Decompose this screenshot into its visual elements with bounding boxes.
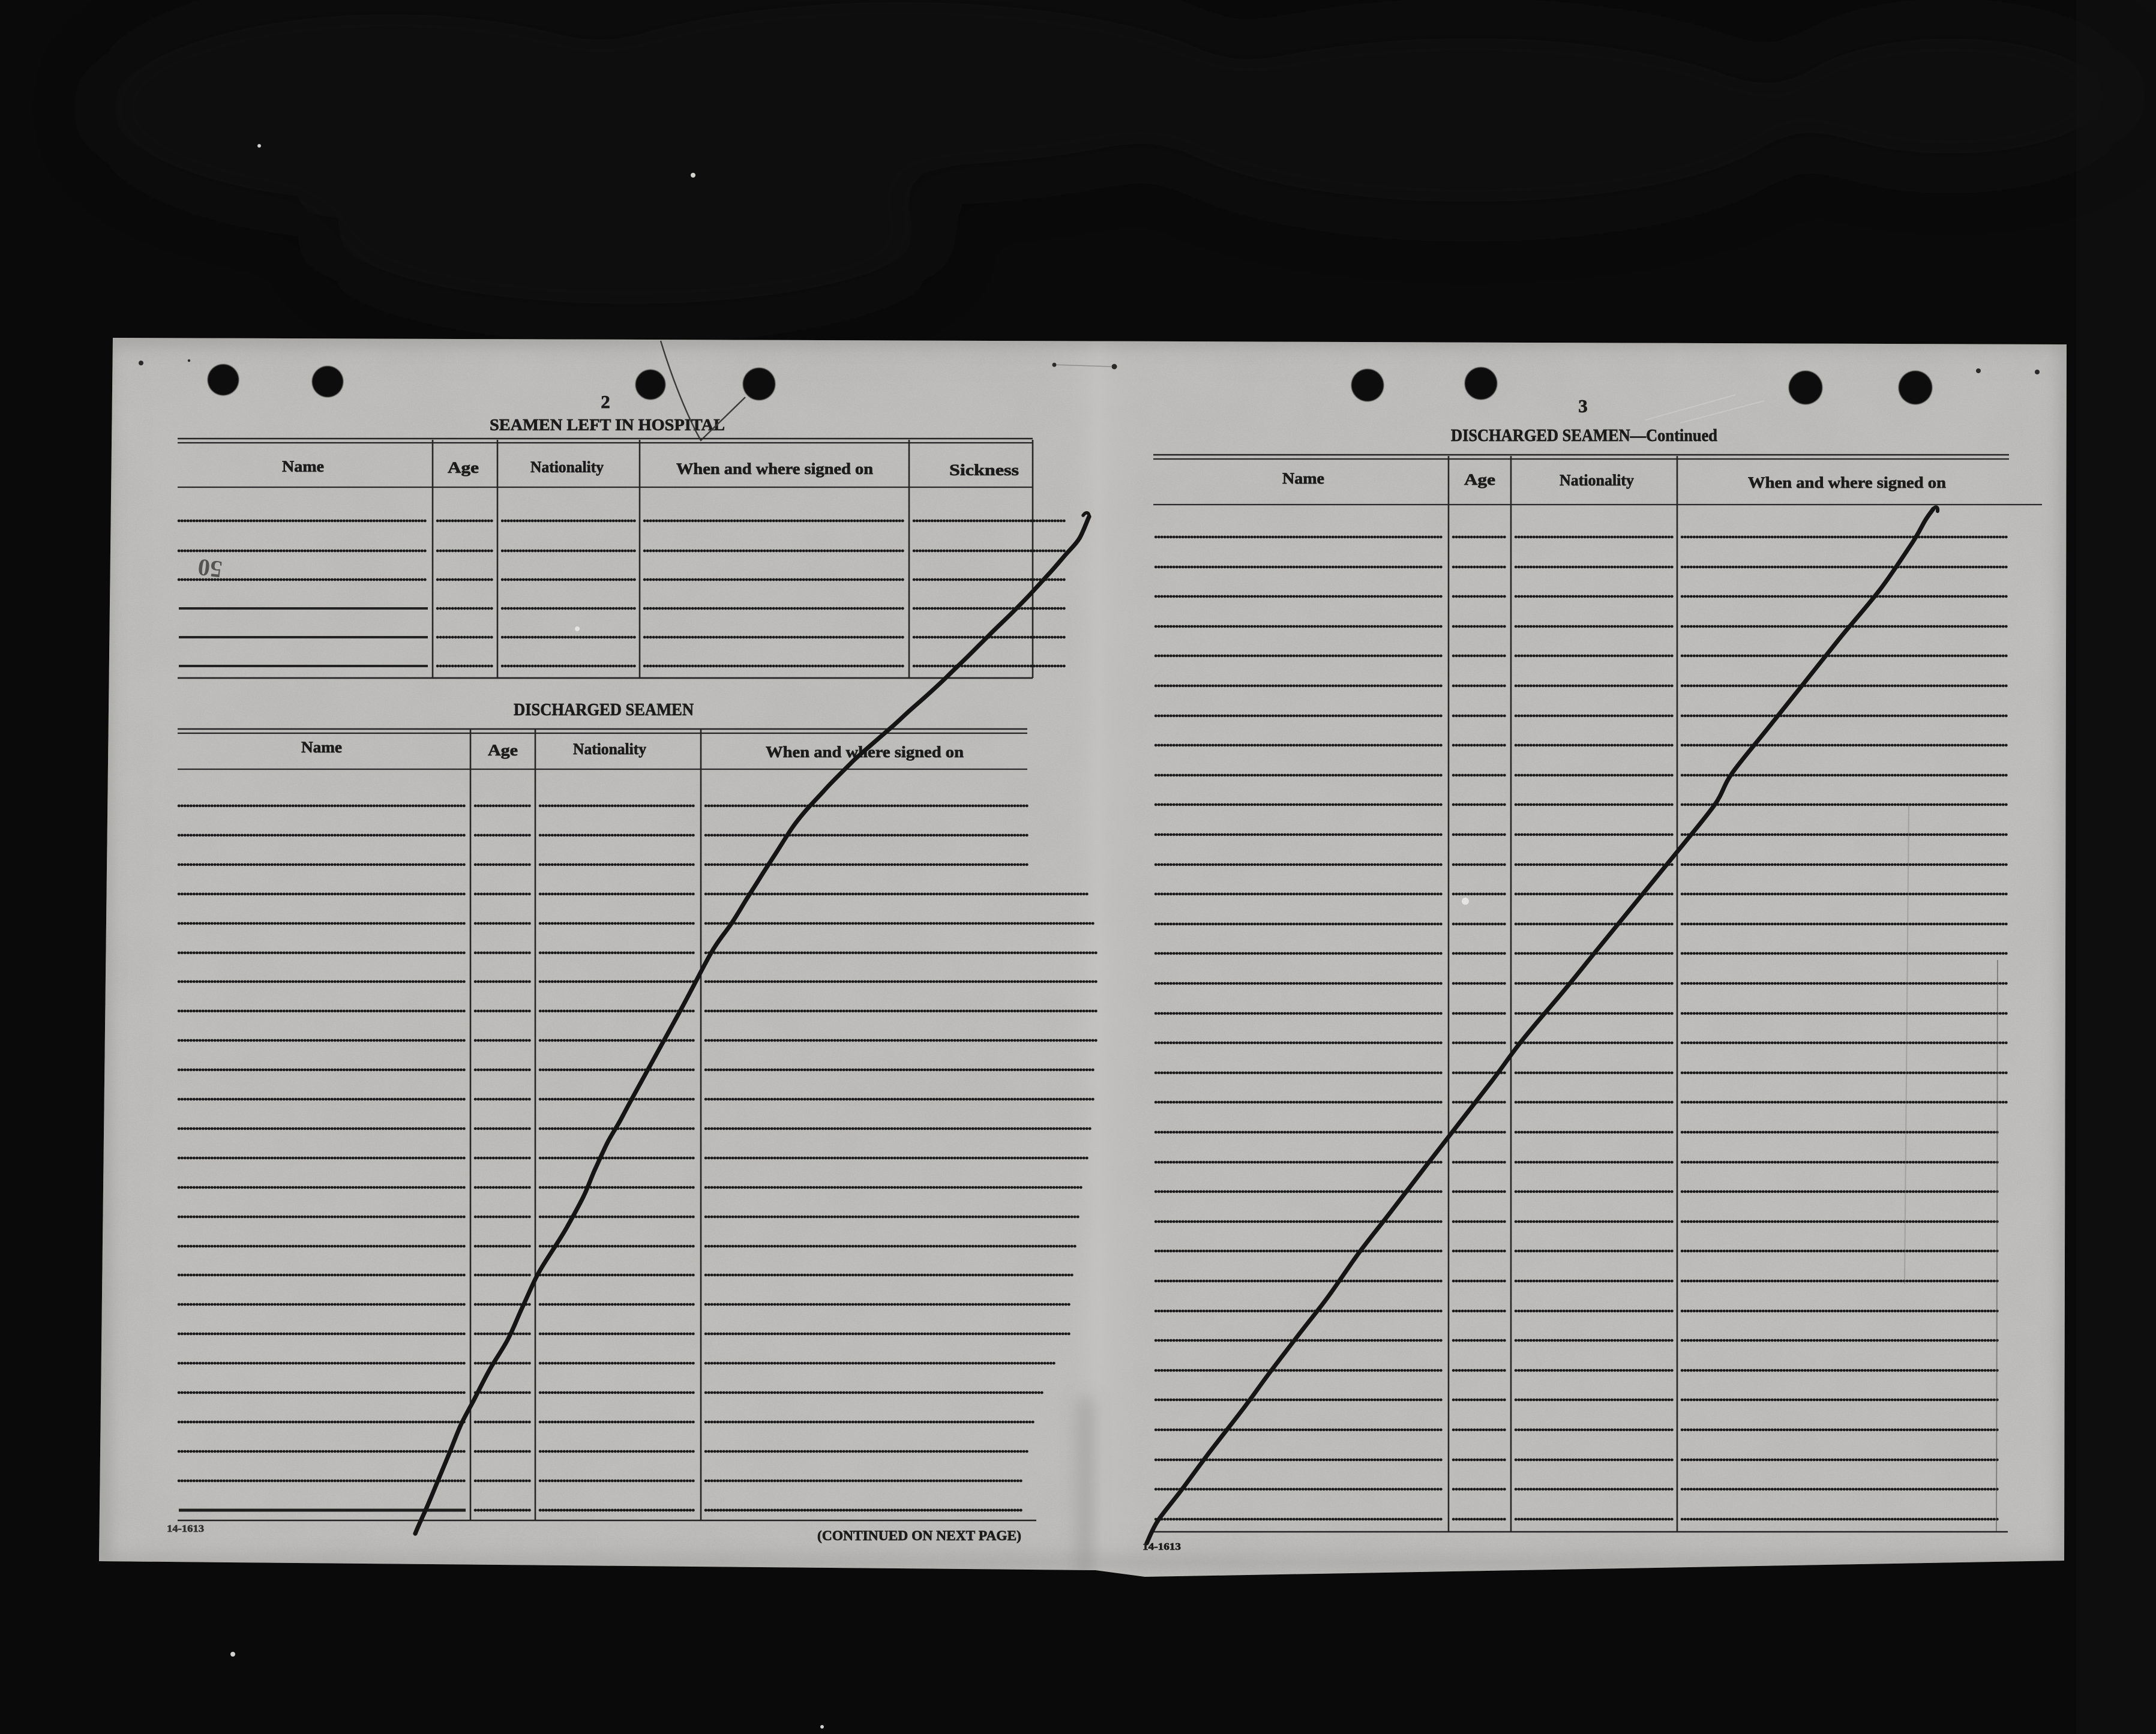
- svg-text:Nationality: Nationality: [530, 458, 604, 476]
- svg-text:Name: Name: [1282, 470, 1324, 487]
- svg-text:Age: Age: [488, 742, 518, 759]
- svg-text:2: 2: [601, 391, 610, 412]
- svg-text:Age: Age: [448, 459, 479, 476]
- svg-text:DISCHARGED SEAMEN: DISCHARGED SEAMEN: [514, 701, 694, 719]
- svg-text:When and where signed on: When and where signed on: [1748, 474, 1947, 491]
- svg-text:50: 50: [196, 554, 223, 584]
- svg-text:14-1613: 14-1613: [167, 1523, 204, 1534]
- svg-text:14-1613: 14-1613: [1143, 1541, 1181, 1552]
- svg-text:DISCHARGED SEAMEN—Continued: DISCHARGED SEAMEN—Continued: [1451, 427, 1717, 445]
- svg-text:Sickness: Sickness: [949, 461, 1019, 479]
- svg-text:Name: Name: [282, 458, 324, 475]
- svg-text:Age: Age: [1464, 471, 1495, 488]
- svg-text:Nationality: Nationality: [573, 740, 646, 758]
- svg-text:Nationality: Nationality: [1560, 472, 1634, 489]
- svg-text:Name: Name: [301, 739, 342, 756]
- svg-text:3: 3: [1578, 395, 1588, 416]
- svg-text:(CONTINUED ON NEXT PAGE): (CONTINUED ON NEXT PAGE): [817, 1528, 1021, 1543]
- svg-text:When and where signed on: When and where signed on: [676, 460, 874, 478]
